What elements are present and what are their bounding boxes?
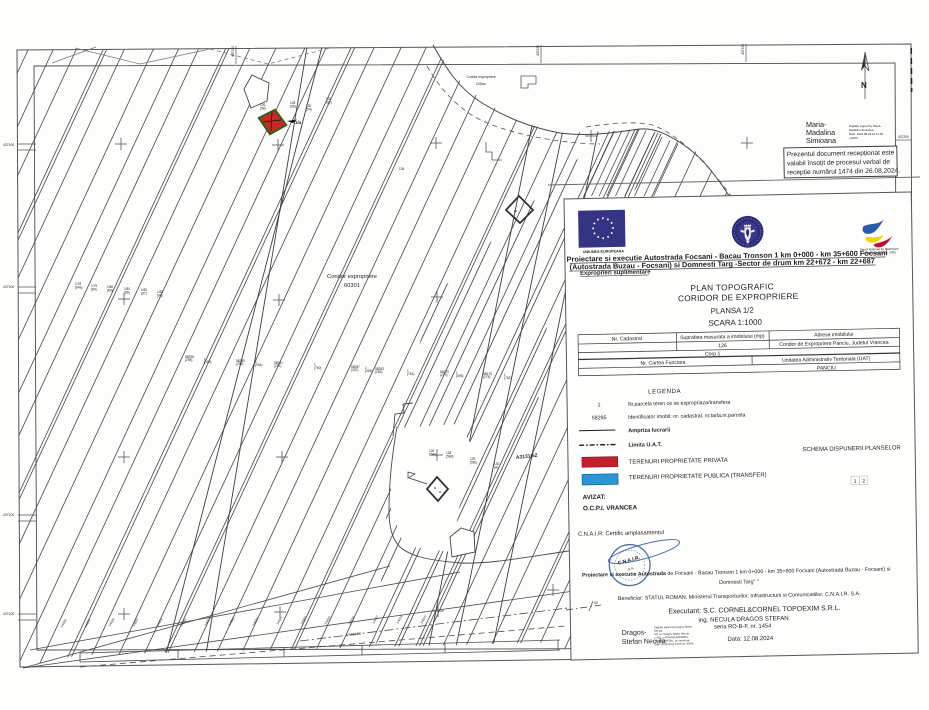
- svg-text:(A): (A): [494, 465, 498, 469]
- svg-text:(58d): (58d): [446, 454, 453, 458]
- svg-text:seria RO-B-F, nr. 1454: seria RO-B-F, nr. 1454: [714, 623, 772, 630]
- svg-text:(87): (87): [141, 291, 147, 295]
- svg-text:Nr. Cadastral: Nr. Cadastral: [612, 336, 642, 343]
- svg-text:437200: 437200: [898, 135, 909, 139]
- svg-text:(275): (275): [483, 375, 490, 379]
- svg-text:Adresa imobilului: Adresa imobilului: [814, 332, 853, 339]
- svg-text:(58a): (58a): [429, 452, 436, 456]
- svg-text:58295: 58295: [592, 415, 607, 421]
- svg-text:(56): (56): [290, 104, 296, 108]
- svg-text:Limita U.A.T.: Limita U.A.T.: [628, 442, 662, 449]
- svg-text:Coridor expropriere: Coridor expropriere: [327, 274, 377, 280]
- svg-text:Data: 12.08.2024: Data: 12.08.2024: [727, 636, 773, 643]
- svg-text:437150: 437150: [536, 45, 540, 56]
- svg-text:60301: 60301: [344, 283, 360, 289]
- svg-text:Domnesti Targ" ": Domnesti Targ" ": [719, 579, 759, 586]
- svg-text:52: 52: [594, 601, 598, 605]
- svg-text:Dragos-: Dragos-: [622, 629, 648, 637]
- svg-text:1: 1: [854, 479, 857, 485]
- svg-text:(84a): (84a): [75, 285, 82, 289]
- svg-text:437100: 437100: [3, 285, 14, 289]
- svg-text:(279): (279): [440, 373, 447, 377]
- svg-text:N: N: [861, 81, 867, 90]
- svg-text:1/a: 1/a: [295, 120, 302, 125]
- svg-text:SCARA 1:1000: SCARA 1:1000: [708, 318, 762, 328]
- svg-text:(295): (295): [236, 362, 243, 366]
- svg-text:(85): (85): [107, 288, 113, 292]
- svg-text:PANCIU: PANCIU: [817, 365, 836, 371]
- svg-text:437100: 437100: [3, 513, 14, 517]
- svg-text:(291): (291): [274, 364, 281, 368]
- svg-text:(58): (58): [260, 106, 266, 110]
- svg-text:(283): (283): [375, 370, 382, 374]
- svg-text:(54): (54): [306, 107, 312, 111]
- svg-text:(84): (84): [91, 287, 97, 291]
- svg-text:(762): (762): [504, 376, 511, 380]
- svg-text:DGlan: DGlan: [476, 82, 486, 86]
- svg-text:(003): (003): [204, 360, 211, 364]
- svg-text:AVIZAT:: AVIZAT:: [583, 494, 606, 501]
- svg-text:437150: 437150: [741, 44, 745, 55]
- svg-text:(761): (761): [407, 372, 414, 376]
- svg-text:Ampriza lucrarii: Ampriza lucrarii: [628, 427, 671, 434]
- svg-text:(287): (287): [351, 368, 358, 372]
- svg-text:O.C.P.I. VRANCEA: O.C.P.I. VRANCEA: [583, 504, 638, 512]
- svg-text:126: 126: [718, 343, 727, 349]
- svg-text:PLANSA 1/2: PLANSA 1/2: [711, 306, 754, 316]
- svg-text:Coridor expropriere: Coridor expropriere: [466, 75, 495, 79]
- svg-text:Corp 1: Corp 1: [705, 351, 721, 357]
- svg-text:134: 134: [399, 167, 405, 171]
- svg-text:(52): (52): [326, 100, 332, 104]
- svg-text:Digitally signed by Dragos-Ste: Digitally signed by Dragos-Stefan: [654, 625, 693, 630]
- svg-text:(006): (006): [456, 374, 463, 378]
- svg-text:(58c): (58c): [470, 460, 477, 464]
- svg-text:1: 1: [597, 402, 600, 408]
- svg-text:+03'00': +03'00': [849, 136, 859, 140]
- svg-text:(005): (005): [365, 369, 372, 373]
- svg-text:Date: 2024.08.12 13:05:04 +03': Date: 2024.08.12 13:05:04 +03'00': [654, 641, 694, 646]
- svg-text:LEGENDA: LEGENDA: [648, 388, 681, 396]
- svg-text:(760): (760): [314, 366, 321, 370]
- svg-text:Nr. Cartea Funciara: Nr. Cartea Funciara: [640, 360, 685, 367]
- svg-text:(86): (86): [124, 290, 130, 294]
- svg-text:ru: ru: [514, 209, 517, 213]
- svg-text:(88): (88): [157, 293, 163, 297]
- svg-text:437100: 437100: [3, 612, 14, 616]
- svg-text:2: 2: [862, 478, 865, 484]
- svg-text:Simioana: Simioana: [806, 136, 836, 145]
- svg-text:(298): (298): [185, 358, 192, 362]
- svg-text:437100: 437100: [3, 143, 14, 147]
- svg-text:(004): (004): [255, 363, 262, 367]
